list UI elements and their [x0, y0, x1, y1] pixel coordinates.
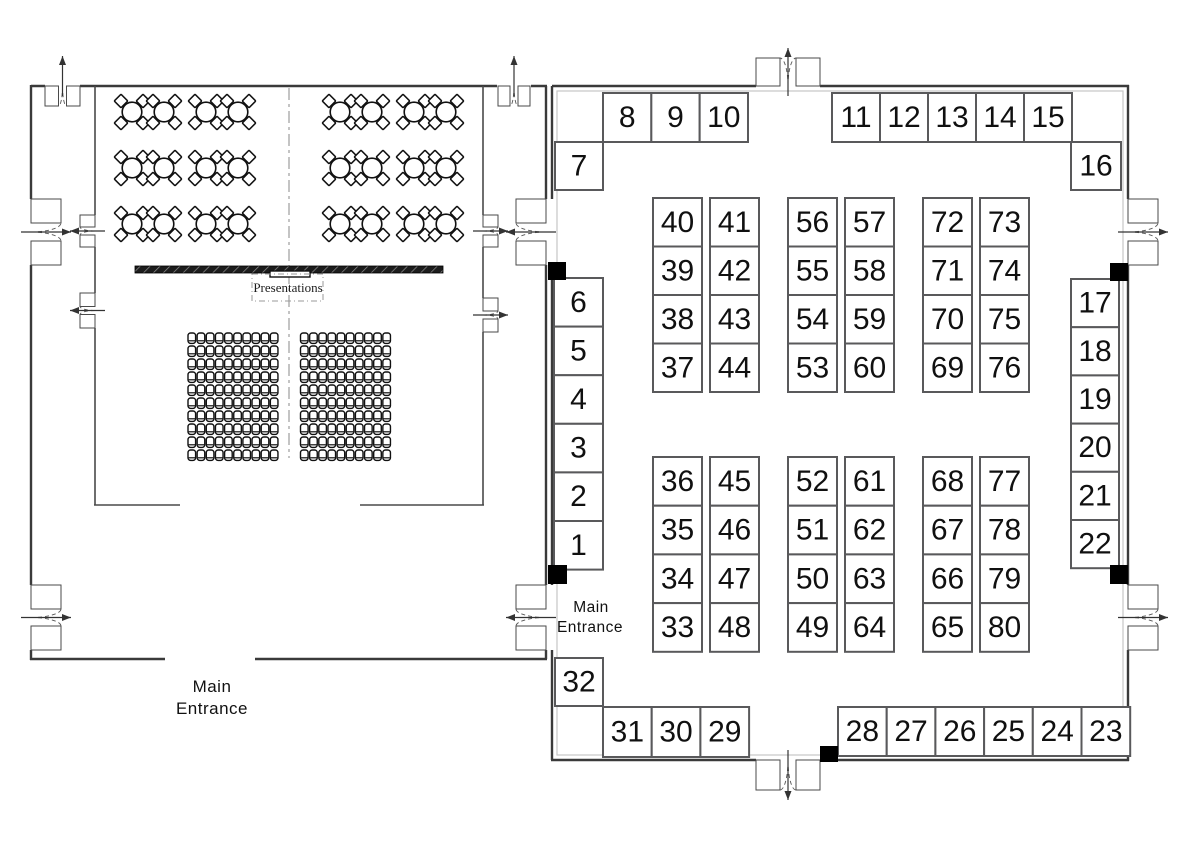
seat	[319, 346, 327, 356]
seat	[261, 424, 269, 434]
seat	[215, 385, 223, 395]
booth-number: 27	[894, 715, 927, 748]
seat	[225, 372, 233, 382]
booth-number: 51	[796, 514, 829, 547]
seat	[328, 437, 336, 447]
seat	[252, 411, 260, 421]
seat	[270, 411, 278, 421]
booth-41: 41	[710, 198, 759, 247]
double-door-icon	[70, 215, 105, 247]
booth-number: 24	[1040, 715, 1073, 748]
right-room-entrance-label: Main Entrance	[557, 599, 623, 636]
double-door-icon	[70, 293, 105, 328]
double-door-icon	[473, 215, 508, 247]
seat	[319, 398, 327, 408]
booth-number: 60	[853, 351, 886, 384]
booth-78: 78	[980, 506, 1029, 555]
booth-59: 59	[845, 295, 894, 344]
booth-number: 63	[853, 562, 886, 595]
booth-number: 45	[718, 465, 751, 498]
booth-number: 43	[718, 303, 751, 336]
seat	[337, 450, 345, 460]
booth-24: 24	[1033, 707, 1082, 756]
booth-number: 29	[708, 716, 741, 749]
booth-48: 48	[710, 603, 759, 652]
banquet-table	[396, 150, 432, 186]
seat	[374, 398, 382, 408]
seat	[337, 346, 345, 356]
seat	[261, 372, 269, 382]
seat	[206, 411, 214, 421]
seat	[252, 359, 260, 369]
booth-37: 37	[653, 344, 702, 393]
booth-number: 7	[571, 150, 588, 183]
booth-number: 48	[718, 611, 751, 644]
booth-52: 52	[788, 457, 837, 506]
booth-2: 2	[554, 472, 603, 521]
seat	[188, 346, 196, 356]
seat	[346, 437, 354, 447]
seat	[346, 346, 354, 356]
seat	[252, 346, 260, 356]
seat	[310, 346, 318, 356]
seat	[206, 333, 214, 343]
seat	[355, 346, 363, 356]
seat	[225, 424, 233, 434]
seat	[225, 437, 233, 447]
right-room-wall-inset-line	[557, 91, 1123, 755]
seat	[355, 372, 363, 382]
booth-number: 35	[661, 514, 694, 547]
seat	[206, 359, 214, 369]
seat	[243, 424, 251, 434]
booth-number: 31	[611, 716, 644, 749]
booth-number: 44	[718, 351, 751, 384]
seat	[365, 385, 373, 395]
booth-number: 16	[1079, 150, 1112, 183]
booth-62: 62	[845, 506, 894, 555]
seat	[206, 450, 214, 460]
banquet-table	[428, 150, 464, 186]
seat	[225, 450, 233, 460]
seat	[261, 359, 269, 369]
seat	[355, 333, 363, 343]
seat	[355, 398, 363, 408]
seat	[188, 333, 196, 343]
left-room	[30, 85, 547, 660]
seat	[261, 398, 269, 408]
booth-number: 59	[853, 303, 886, 336]
booth-number: 38	[661, 303, 694, 336]
seat	[383, 385, 391, 395]
booth-number: 62	[853, 514, 886, 547]
seat	[337, 333, 345, 343]
seat	[383, 450, 391, 460]
booth-number: 75	[988, 303, 1021, 336]
seat	[234, 385, 242, 395]
booth-64: 64	[845, 603, 894, 652]
seat	[310, 333, 318, 343]
booth-74: 74	[980, 247, 1029, 296]
booth-number: 36	[661, 465, 694, 498]
booth-34: 34	[653, 554, 702, 603]
double-door-icon	[21, 585, 71, 650]
booth-number: 71	[931, 254, 964, 287]
double-door-icon	[1118, 585, 1168, 650]
seat	[215, 437, 223, 447]
booth-53: 53	[788, 344, 837, 393]
banquet-table	[220, 150, 256, 186]
seat	[215, 346, 223, 356]
seat	[337, 437, 345, 447]
seat	[328, 450, 336, 460]
seat	[301, 359, 309, 369]
seat	[225, 359, 233, 369]
booth-number: 2	[570, 480, 587, 513]
seat	[270, 450, 278, 460]
seat	[301, 385, 309, 395]
seat	[310, 450, 318, 460]
seat	[310, 437, 318, 447]
booth-number: 18	[1078, 335, 1111, 368]
seat	[301, 411, 309, 421]
seat	[252, 424, 260, 434]
banquet-table	[322, 206, 358, 242]
seat	[301, 424, 309, 434]
seat	[319, 450, 327, 460]
banquet-table	[396, 206, 432, 242]
seat	[310, 372, 318, 382]
seat	[206, 424, 214, 434]
seat	[270, 424, 278, 434]
booth-9: 9	[651, 93, 699, 142]
seat	[346, 450, 354, 460]
booth-47: 47	[710, 554, 759, 603]
booth-42: 42	[710, 247, 759, 296]
booth-1: 1	[554, 521, 603, 570]
banquet-table	[114, 94, 150, 130]
seat	[319, 372, 327, 382]
seat	[337, 385, 345, 395]
double-door-icon	[756, 48, 820, 96]
seat	[243, 372, 251, 382]
booth-8: 8	[603, 93, 651, 142]
right-room	[551, 85, 1129, 761]
seat	[197, 333, 205, 343]
booth-number: 68	[931, 465, 964, 498]
seat	[365, 333, 373, 343]
booth-number: 33	[661, 611, 694, 644]
banquet-table	[396, 94, 432, 130]
seat	[252, 385, 260, 395]
seat	[365, 372, 373, 382]
booth-14: 14	[976, 93, 1024, 142]
entrance-label-line: Main	[193, 677, 232, 696]
seat	[197, 424, 205, 434]
booth-40: 40	[653, 198, 702, 247]
booth-number: 65	[931, 611, 964, 644]
booth-number: 54	[796, 303, 829, 336]
seat	[374, 346, 382, 356]
left-room-entrance-label: Main Entrance	[176, 677, 248, 718]
booth-number: 19	[1078, 383, 1111, 416]
seat	[225, 333, 233, 343]
seat	[319, 437, 327, 447]
booth-11: 11	[832, 93, 880, 142]
booth-70: 70	[923, 295, 972, 344]
seat	[234, 398, 242, 408]
seat	[270, 437, 278, 447]
booth-16: 16	[1071, 142, 1121, 190]
booth-3: 3	[554, 424, 603, 473]
seat	[374, 411, 382, 421]
booth-67: 67	[923, 506, 972, 555]
booth-38: 38	[653, 295, 702, 344]
seat	[206, 398, 214, 408]
booth-number: 8	[619, 101, 636, 134]
seat	[355, 411, 363, 421]
seat	[310, 424, 318, 434]
booth-number: 72	[931, 206, 964, 239]
booth-number: 32	[562, 666, 595, 699]
seat	[355, 437, 363, 447]
seat	[261, 333, 269, 343]
booth-31: 31	[603, 707, 652, 757]
seat	[319, 385, 327, 395]
seat	[234, 333, 242, 343]
banquet-table	[188, 94, 224, 130]
seat	[319, 424, 327, 434]
booth-number: 39	[661, 254, 694, 287]
banquet-table	[428, 94, 464, 130]
seat	[310, 411, 318, 421]
seat	[365, 411, 373, 421]
seat	[234, 411, 242, 421]
seat	[355, 450, 363, 460]
booth-60: 60	[845, 344, 894, 393]
booth-number: 78	[988, 514, 1021, 547]
seat	[328, 385, 336, 395]
booth-56: 56	[788, 198, 837, 247]
seat	[234, 372, 242, 382]
seat	[301, 398, 309, 408]
double-door-icon	[506, 585, 556, 650]
seat	[225, 398, 233, 408]
booth-number: 22	[1078, 528, 1111, 561]
booth-number: 28	[846, 715, 879, 748]
booth-36: 36	[653, 457, 702, 506]
seat	[261, 437, 269, 447]
booth-number: 5	[570, 334, 587, 367]
booth-number: 14	[983, 101, 1016, 134]
booth-number: 20	[1078, 431, 1111, 464]
booth-number: 73	[988, 206, 1021, 239]
banquet-table	[354, 94, 390, 130]
seat	[261, 411, 269, 421]
booth-71: 71	[923, 247, 972, 296]
seat	[365, 398, 373, 408]
booth-4: 4	[554, 375, 603, 424]
booth-number: 37	[661, 351, 694, 384]
seat	[252, 398, 260, 408]
presentations-label: Presentations	[253, 280, 322, 295]
booth-number: 67	[931, 514, 964, 547]
booth-number: 1	[570, 529, 587, 562]
seat	[215, 372, 223, 382]
booth-7: 7	[555, 142, 603, 190]
wall-marker	[820, 746, 838, 762]
booth-number: 42	[718, 254, 751, 287]
booth-number: 55	[796, 254, 829, 287]
booth-30: 30	[652, 707, 701, 757]
seat	[188, 398, 196, 408]
seat	[365, 450, 373, 460]
booth-25: 25	[984, 707, 1033, 756]
seat	[234, 450, 242, 460]
seat	[252, 372, 260, 382]
seat	[383, 424, 391, 434]
seat	[319, 359, 327, 369]
seat	[197, 450, 205, 460]
banquet-table	[428, 206, 464, 242]
booth-66: 66	[923, 554, 972, 603]
seat	[243, 398, 251, 408]
booth-46: 46	[710, 506, 759, 555]
seat	[374, 359, 382, 369]
booth-number: 15	[1031, 101, 1064, 134]
booth-50: 50	[788, 554, 837, 603]
seat	[206, 437, 214, 447]
seat	[319, 333, 327, 343]
seat	[243, 333, 251, 343]
seat	[197, 372, 205, 382]
seat	[243, 450, 251, 460]
booth-73: 73	[980, 198, 1029, 247]
booth-15: 15	[1024, 93, 1072, 142]
seat	[225, 346, 233, 356]
seat	[188, 450, 196, 460]
seat	[206, 372, 214, 382]
booth-29: 29	[700, 707, 749, 757]
seat	[310, 398, 318, 408]
seat	[215, 398, 223, 408]
booth-28: 28	[838, 707, 887, 756]
seat	[374, 437, 382, 447]
seat	[243, 385, 251, 395]
booth-26: 26	[935, 707, 984, 756]
seat	[337, 372, 345, 382]
seat	[383, 346, 391, 356]
seat	[188, 372, 196, 382]
booth-number: 3	[570, 432, 587, 465]
booth-6: 6	[554, 278, 603, 327]
seat	[346, 385, 354, 395]
seat	[270, 385, 278, 395]
seat	[197, 437, 205, 447]
seat	[374, 424, 382, 434]
booth-13: 13	[928, 93, 976, 142]
theater-seating-left-block	[188, 333, 278, 460]
booth-number: 21	[1078, 479, 1111, 512]
booth-45: 45	[710, 457, 759, 506]
booth-number: 79	[988, 562, 1021, 595]
seat	[188, 437, 196, 447]
booth-number: 52	[796, 465, 829, 498]
booth-number: 17	[1078, 287, 1111, 320]
booth-61: 61	[845, 457, 894, 506]
seat	[328, 333, 336, 343]
booth-51: 51	[788, 506, 837, 555]
double-door-icon	[1118, 199, 1168, 265]
seat	[365, 359, 373, 369]
booth-number: 70	[931, 303, 964, 336]
banquet-table	[114, 150, 150, 186]
seat	[383, 398, 391, 408]
seat	[270, 398, 278, 408]
booth-number: 61	[853, 465, 886, 498]
booths-layer: 8910111213141571665432117181920212240393…	[554, 93, 1130, 757]
booth-number: 4	[570, 383, 587, 416]
seat	[243, 437, 251, 447]
double-door-icon	[756, 750, 820, 800]
seat	[243, 346, 251, 356]
booth-number: 53	[796, 351, 829, 384]
banquet-table	[354, 206, 390, 242]
seat	[355, 424, 363, 434]
seat	[197, 359, 205, 369]
seat	[346, 424, 354, 434]
banquet-table	[220, 94, 256, 130]
seat	[252, 437, 260, 447]
seat	[252, 333, 260, 343]
seat	[234, 424, 242, 434]
double-door-icon	[506, 199, 556, 265]
booth-number: 66	[931, 562, 964, 595]
seat	[365, 346, 373, 356]
seat	[374, 385, 382, 395]
booth-number: 34	[661, 562, 694, 595]
booth-number: 56	[796, 206, 829, 239]
booth-18: 18	[1071, 327, 1119, 375]
booth-43: 43	[710, 295, 759, 344]
floor-plan-page: Presentations 89101112131415716654321171…	[0, 0, 1191, 842]
seat	[197, 385, 205, 395]
seat	[355, 385, 363, 395]
booth-49: 49	[788, 603, 837, 652]
booth-55: 55	[788, 247, 837, 296]
booth-5: 5	[554, 327, 603, 376]
seat	[188, 411, 196, 421]
booth-76: 76	[980, 344, 1029, 393]
banquet-table	[114, 206, 150, 242]
seat	[197, 411, 205, 421]
seat	[346, 411, 354, 421]
wall-marker	[1110, 565, 1128, 584]
booth-72: 72	[923, 198, 972, 247]
booth-number: 58	[853, 254, 886, 287]
booth-number: 9	[667, 101, 684, 134]
seat	[328, 346, 336, 356]
seat	[301, 372, 309, 382]
booth-number: 50	[796, 562, 829, 595]
booth-39: 39	[653, 247, 702, 296]
booth-number: 10	[707, 101, 740, 134]
seat	[346, 372, 354, 382]
seat	[383, 437, 391, 447]
booth-54: 54	[788, 295, 837, 344]
double-door-icon	[21, 199, 71, 265]
seat	[374, 372, 382, 382]
